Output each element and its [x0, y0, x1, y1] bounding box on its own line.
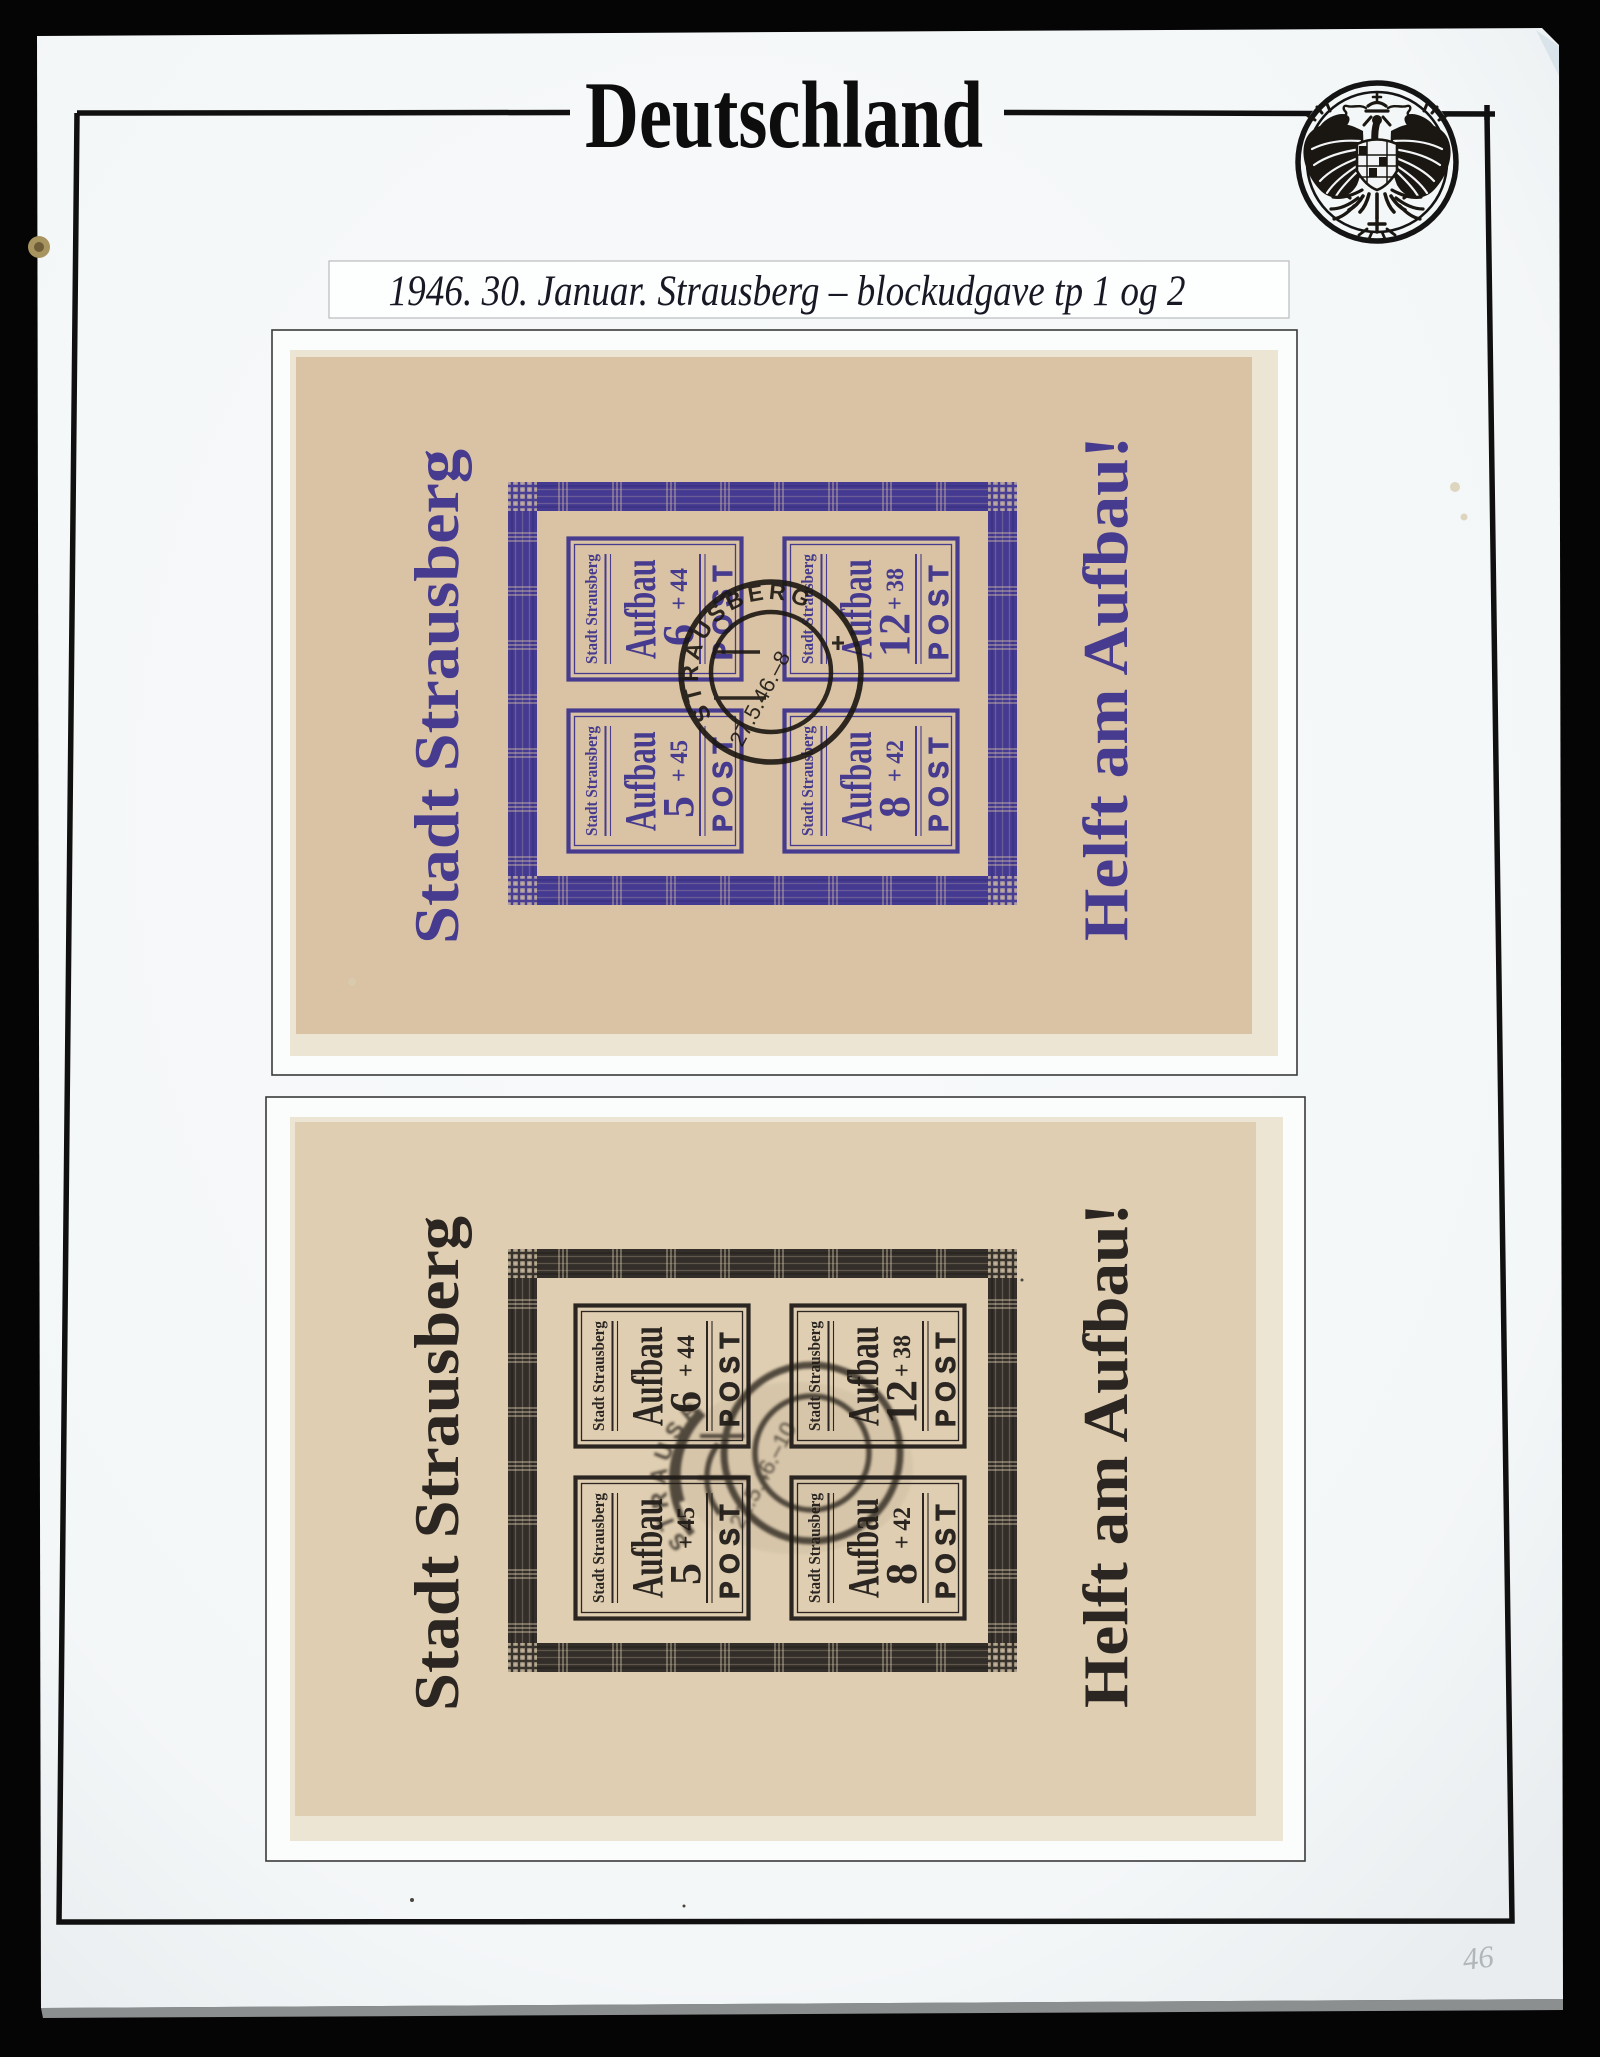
- svg-text:8: 8: [877, 1563, 926, 1585]
- svg-text:POST: POST: [930, 1325, 961, 1427]
- svg-text:+ 44: + 44: [666, 568, 693, 610]
- svg-text:+ 38: + 38: [882, 568, 909, 610]
- svg-text:Stadt Strausberg: Stadt Strausberg: [401, 449, 472, 944]
- svg-text:POST: POST: [923, 730, 954, 832]
- svg-text:+ 38: + 38: [889, 1335, 916, 1377]
- svg-text:1946. 30. Januar. Strausberg –: 1946. 30. Januar. Strausberg – blockudga…: [389, 268, 1186, 315]
- svg-text:Helft am Aufbau!: Helft am Aufbau!: [1070, 436, 1141, 941]
- svg-text:+ 42: + 42: [882, 740, 909, 782]
- svg-text:POST: POST: [930, 1497, 961, 1599]
- svg-text:+ 45: + 45: [666, 740, 693, 782]
- svg-text:5: 5: [654, 796, 703, 818]
- svg-text:46: 46: [1461, 1938, 1497, 1977]
- svg-text:Stadt Strausberg: Stadt Strausberg: [582, 554, 601, 664]
- svg-text:8: 8: [870, 796, 919, 818]
- svg-text:Deutschland: Deutschland: [585, 62, 983, 168]
- svg-text:Stadt Strausberg: Stadt Strausberg: [582, 726, 601, 836]
- svg-text:Stadt Strausberg: Stadt Strausberg: [589, 1493, 608, 1603]
- svg-text:5: 5: [661, 1563, 710, 1585]
- svg-text:Stadt Strausberg: Stadt Strausberg: [589, 1321, 608, 1431]
- svg-text:+ 44: + 44: [673, 1335, 700, 1377]
- svg-text:Stadt Strausberg: Stadt Strausberg: [798, 726, 817, 836]
- svg-text:Helft am Aufbau!: Helft am Aufbau!: [1070, 1203, 1141, 1708]
- svg-text:POST: POST: [923, 558, 954, 660]
- svg-text:Stadt Strausberg: Stadt Strausberg: [401, 1216, 472, 1711]
- svg-text:12: 12: [870, 613, 919, 657]
